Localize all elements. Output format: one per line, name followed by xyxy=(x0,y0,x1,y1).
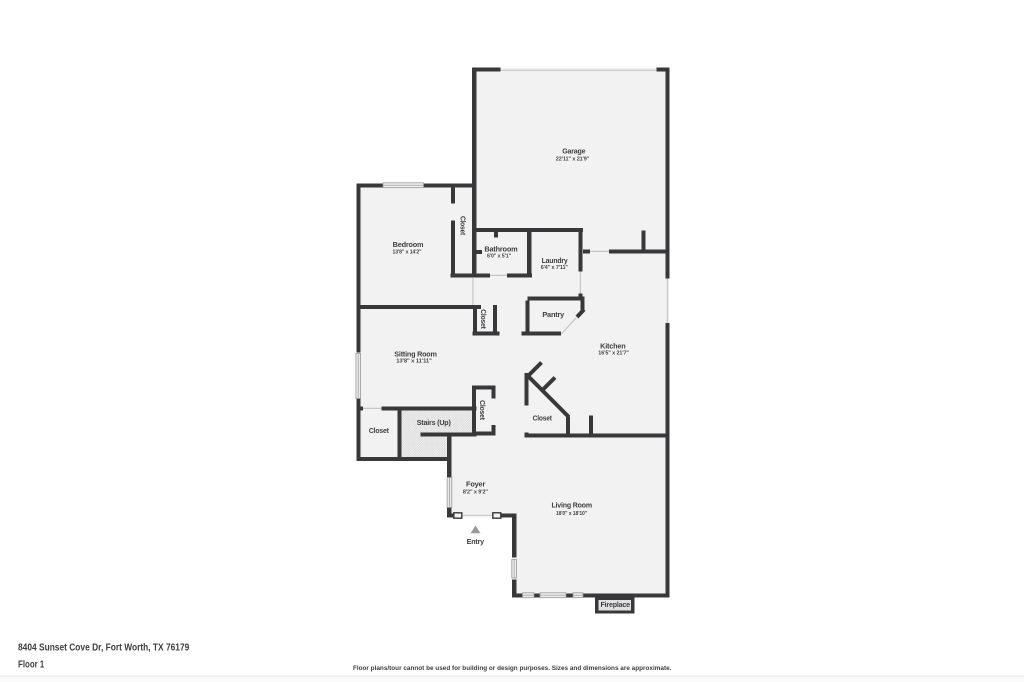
svg-text:13'8" x 14'2": 13'8" x 14'2" xyxy=(393,249,423,255)
svg-text:Sitting Room: Sitting Room xyxy=(394,349,437,358)
svg-text:8'2" x 9'2": 8'2" x 9'2" xyxy=(463,490,489,496)
svg-text:8404 Sunset Cove Dr, Fort Wort: 8404 Sunset Cove Dr, Fort Worth, TX 7617… xyxy=(18,642,190,653)
svg-text:22'11" x 21'9": 22'11" x 21'9" xyxy=(556,156,590,162)
svg-text:16'5" x 21'7": 16'5" x 21'7" xyxy=(598,350,629,356)
svg-text:Foyer: Foyer xyxy=(466,479,485,488)
svg-text:Fireplace: Fireplace xyxy=(600,600,630,609)
svg-text:Closet: Closet xyxy=(369,426,389,435)
svg-text:Entry: Entry xyxy=(467,537,485,546)
svg-text:6'4" x 7'11": 6'4" x 7'11" xyxy=(541,265,569,271)
svg-text:Stairs (Up): Stairs (Up) xyxy=(417,418,452,427)
svg-text:Closet: Closet xyxy=(478,400,485,421)
svg-text:Garage: Garage xyxy=(562,147,585,156)
svg-text:Closet: Closet xyxy=(459,216,466,236)
svg-text:Bathroom: Bathroom xyxy=(484,244,518,253)
svg-text:Floor 1: Floor 1 xyxy=(18,660,45,671)
svg-text:Living Room: Living Room xyxy=(551,500,592,509)
svg-text:Closet: Closet xyxy=(533,413,553,422)
svg-text:Closet: Closet xyxy=(479,309,486,329)
svg-text:Kitchen: Kitchen xyxy=(600,341,626,350)
svg-text:18'0" x 18'10": 18'0" x 18'10" xyxy=(556,511,588,517)
svg-text:Pantry: Pantry xyxy=(542,310,565,319)
svg-text:6'0" x 5'1": 6'0" x 5'1" xyxy=(487,253,512,259)
svg-text:Floor plans/tour cannot be use: Floor plans/tour cannot be used for buil… xyxy=(353,665,672,672)
svg-text:Bedroom: Bedroom xyxy=(393,240,424,249)
svg-text:13'8" x 11'11": 13'8" x 11'11" xyxy=(396,359,432,365)
